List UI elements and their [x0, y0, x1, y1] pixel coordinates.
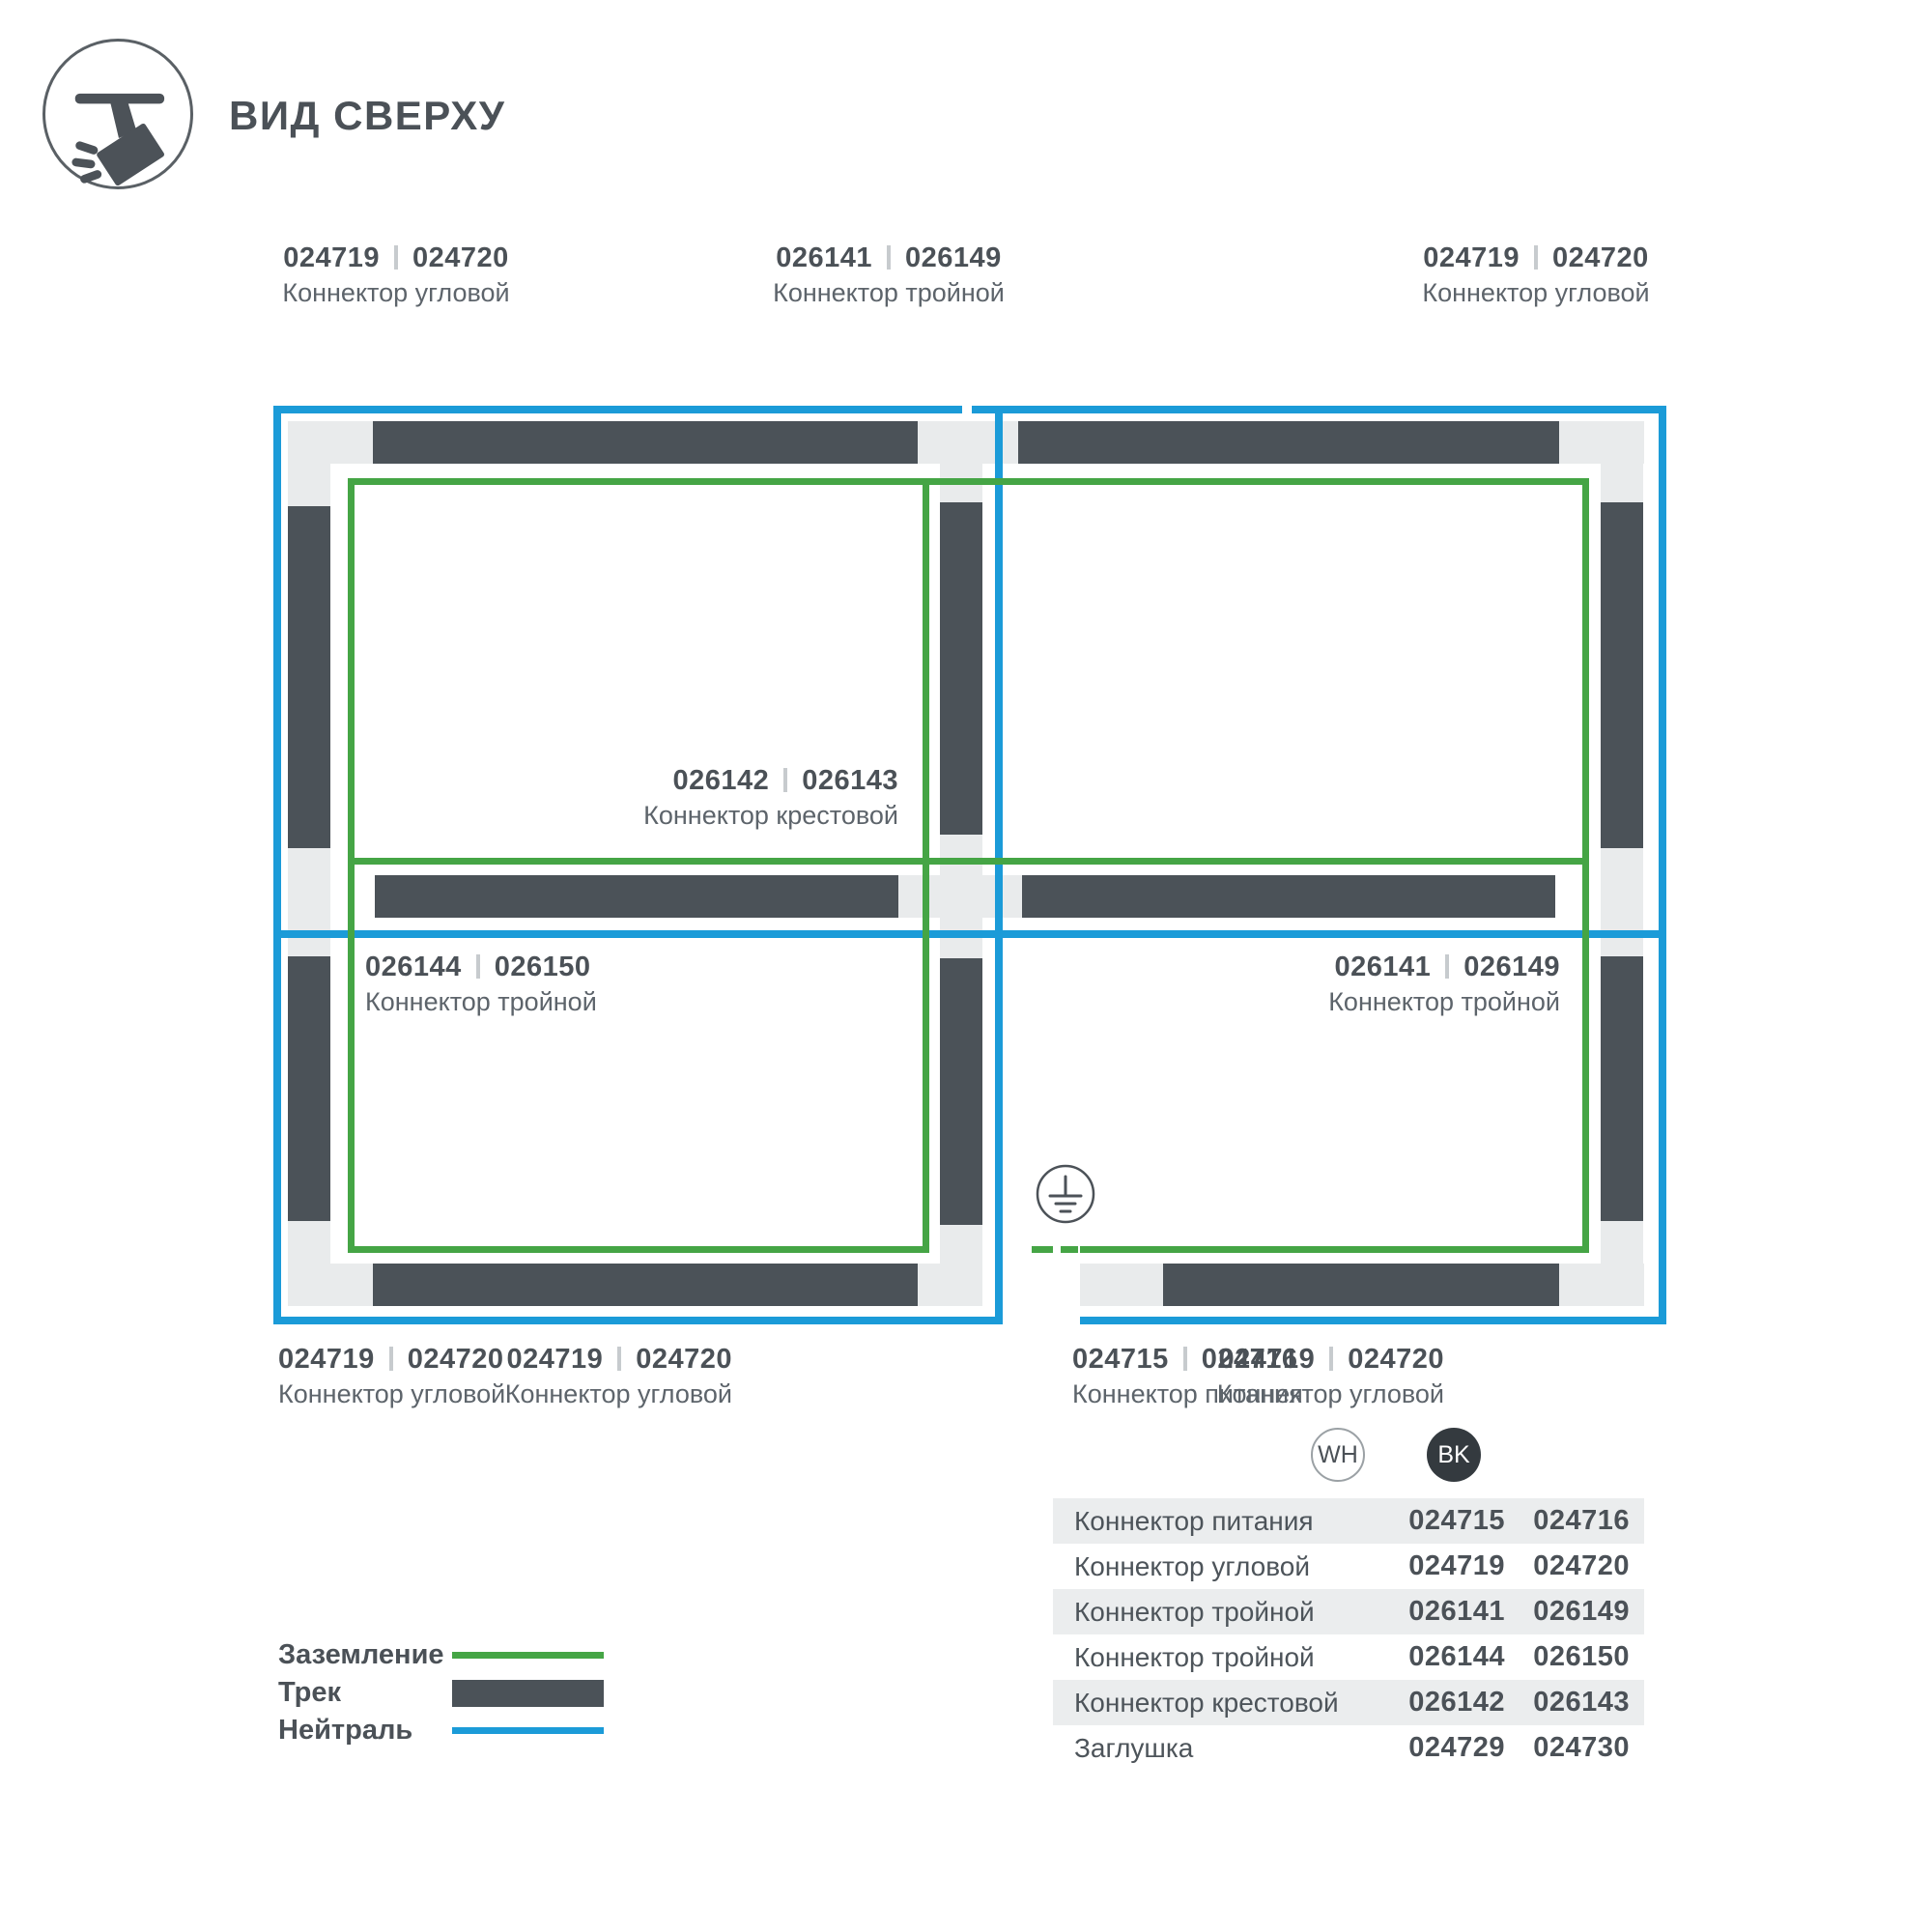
ground-line: [1032, 1246, 1053, 1253]
table-row: Коннектор тройной026141026149: [1053, 1589, 1644, 1634]
legend-item-neutral: Нейтраль: [278, 1712, 604, 1749]
table-row: Коннектор угловой024719024720: [1053, 1544, 1644, 1589]
divider: [1534, 245, 1538, 270]
track-segment: [1601, 502, 1643, 848]
divider: [1329, 1347, 1333, 1371]
ground-line: [1061, 1246, 1078, 1253]
ground-line: [923, 478, 929, 1253]
divider: [617, 1347, 621, 1371]
connector-label-middle-left: 026144026150 Коннектор тройной: [365, 951, 703, 1018]
connector-label-center-cross: 026142026143 Коннектор крестовой: [560, 764, 898, 832]
legend-item-ground: Заземление: [278, 1636, 604, 1674]
divider: [1445, 954, 1449, 979]
color-badge-bk: BK: [1427, 1428, 1481, 1482]
connector-block: [940, 421, 982, 502]
track-segment: [288, 956, 330, 1221]
track-segment: [288, 506, 330, 848]
color-badge-wh: WH: [1311, 1428, 1365, 1482]
table-row: Коннектор питания024715024716: [1053, 1498, 1644, 1544]
neutral-line: [1080, 1317, 1666, 1324]
neutral-line: [273, 406, 281, 1324]
connector-block: [918, 1264, 982, 1306]
parts-table: Коннектор питания024715024716 Коннектор …: [1053, 1498, 1644, 1771]
connector-label-middle-right: 026141026149 Коннектор тройной: [1222, 951, 1560, 1018]
page: ВИД СВЕРХУ 024719024720 Коннектор углово…: [0, 0, 1932, 1932]
track-segment: [373, 421, 918, 464]
ground-line-swatch: [452, 1652, 604, 1659]
table-row: Коннектор тройной026144026150: [1053, 1634, 1644, 1680]
ground-line: [348, 478, 355, 1253]
track-swatch: [452, 1680, 604, 1707]
track-segment: [1018, 421, 1559, 464]
table-row: Заглушка024729024730: [1053, 1725, 1644, 1771]
connector-block: [288, 1264, 375, 1306]
connector-block: [1601, 848, 1643, 956]
connector-block: [288, 848, 330, 956]
neutral-line: [273, 1317, 1003, 1324]
legend: Заземление Трек Нейтраль: [278, 1636, 604, 1749]
divider: [887, 245, 891, 270]
divider: [394, 245, 398, 270]
neutral-line: [1659, 406, 1666, 1324]
legend-item-track: Трек: [278, 1674, 604, 1712]
track-segment: [373, 1264, 918, 1306]
connector-block: [288, 421, 330, 506]
track-segment: [375, 875, 898, 918]
neutral-line: [972, 406, 1666, 413]
track-segment: [1163, 1264, 1559, 1306]
connector-block: [1559, 1264, 1644, 1306]
divider: [389, 1347, 393, 1371]
divider: [783, 768, 787, 792]
ground-line: [348, 478, 1589, 485]
track-segment: [1022, 875, 1555, 918]
neutral-line: [273, 406, 962, 413]
divider: [476, 954, 480, 979]
neutral-line-swatch: [452, 1727, 604, 1734]
connector-label-top-middle: 026141026149 Коннектор тройной: [739, 241, 1038, 309]
earth-ground-icon: [1035, 1163, 1096, 1225]
connector-block: [940, 835, 982, 958]
track-segment: [1601, 956, 1643, 1221]
connector-block: [1080, 1264, 1163, 1306]
ground-line: [348, 858, 1589, 865]
connector-block: [1601, 421, 1643, 502]
neutral-line: [995, 406, 1003, 1324]
ground-line: [1080, 1246, 1589, 1253]
ground-line: [1582, 478, 1589, 1253]
track-segment: [940, 958, 982, 1225]
neutral-line: [273, 930, 1666, 938]
connector-label-bottom-mid-left: 024719024720 Коннектор угловой: [394, 1343, 732, 1410]
connector-label-bottom-right: 024719024720 Коннектор угловой: [1106, 1343, 1444, 1410]
table-row: Коннектор крестовой026142026143: [1053, 1680, 1644, 1725]
ground-line: [348, 1246, 929, 1253]
connector-label-top-right: 024719024720 Коннектор угловой: [1386, 241, 1686, 309]
track-segment: [940, 502, 982, 835]
connector-label-top-left: 024719024720 Коннектор угловой: [246, 241, 546, 309]
